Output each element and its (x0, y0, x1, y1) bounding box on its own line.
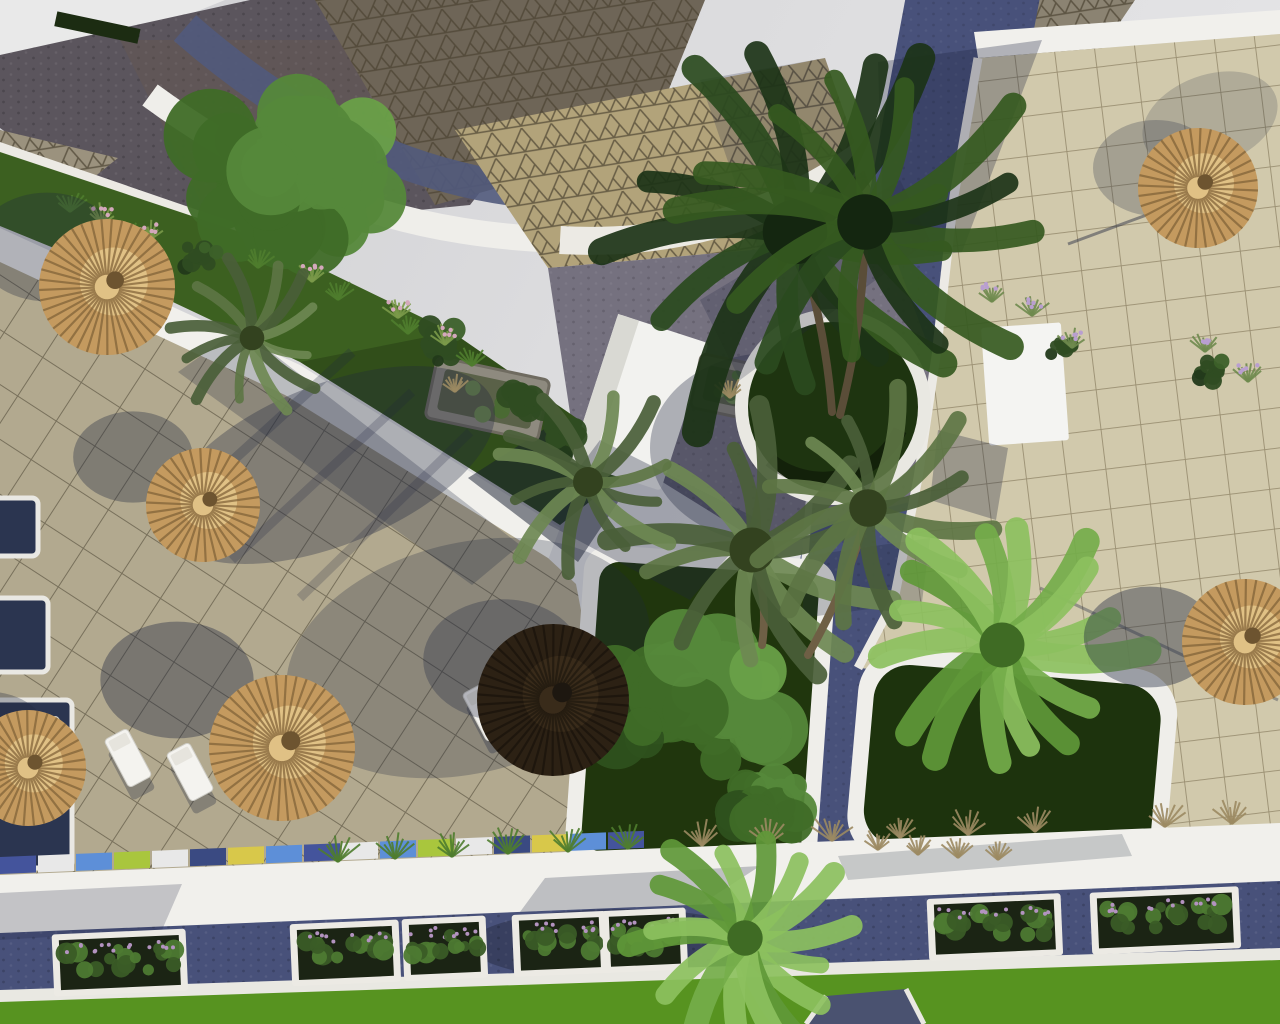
curb-segment (38, 854, 74, 872)
street-planter-box (512, 911, 609, 977)
street-planter-box (52, 929, 189, 997)
street-planter-box (927, 893, 1064, 961)
curb-segment (0, 856, 36, 874)
curb-segment (152, 849, 188, 867)
curb-segment (76, 852, 112, 870)
poolside-pad (0, 598, 48, 672)
poolside-pad (0, 498, 38, 556)
resort-plaza-render (0, 0, 1280, 1024)
curb-segment (228, 846, 264, 864)
street-planter-box (1090, 886, 1242, 954)
aerial-render (0, 0, 1280, 1024)
curb-segment (456, 837, 492, 855)
curb-segment (190, 848, 226, 866)
curb-segment (266, 845, 302, 863)
street-planter-box (402, 916, 489, 982)
curb-segment (114, 851, 150, 869)
street-planter-box (290, 920, 402, 987)
